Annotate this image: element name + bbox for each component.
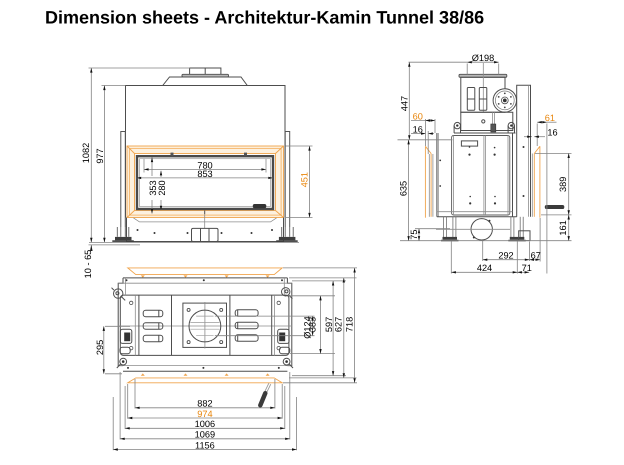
svg-text:75: 75 bbox=[409, 229, 419, 239]
svg-text:882: 882 bbox=[197, 399, 212, 409]
svg-text:280: 280 bbox=[157, 180, 167, 195]
svg-text:16: 16 bbox=[547, 128, 557, 138]
svg-text:61: 61 bbox=[545, 113, 555, 123]
svg-text:1156: 1156 bbox=[195, 440, 215, 450]
svg-text:71: 71 bbox=[522, 263, 532, 273]
svg-text:424: 424 bbox=[477, 263, 492, 273]
svg-text:1069: 1069 bbox=[195, 430, 215, 440]
svg-text:383: 383 bbox=[308, 317, 318, 332]
svg-text:853: 853 bbox=[197, 169, 212, 179]
svg-text:635: 635 bbox=[398, 181, 408, 196]
svg-text:977: 977 bbox=[95, 148, 105, 163]
svg-text:10 - 65: 10 - 65 bbox=[83, 250, 93, 279]
svg-text:Ø198: Ø198 bbox=[472, 53, 494, 63]
svg-text:1006: 1006 bbox=[195, 419, 215, 429]
svg-text:718: 718 bbox=[345, 317, 355, 332]
svg-text:16: 16 bbox=[413, 125, 423, 135]
svg-text:627: 627 bbox=[333, 317, 343, 332]
svg-text:295: 295 bbox=[95, 340, 105, 355]
svg-text:1082: 1082 bbox=[81, 143, 91, 163]
svg-text:161: 161 bbox=[558, 220, 568, 235]
svg-text:447: 447 bbox=[400, 96, 410, 111]
svg-text:292: 292 bbox=[498, 251, 513, 261]
svg-text:389: 389 bbox=[558, 177, 568, 192]
svg-text:67: 67 bbox=[531, 251, 541, 261]
svg-text:974: 974 bbox=[197, 409, 212, 419]
svg-text:Dimension sheets - Architektur: Dimension sheets - Architektur-Kamin Tun… bbox=[45, 8, 484, 28]
svg-text:451: 451 bbox=[300, 172, 310, 187]
svg-text:60: 60 bbox=[413, 111, 423, 121]
